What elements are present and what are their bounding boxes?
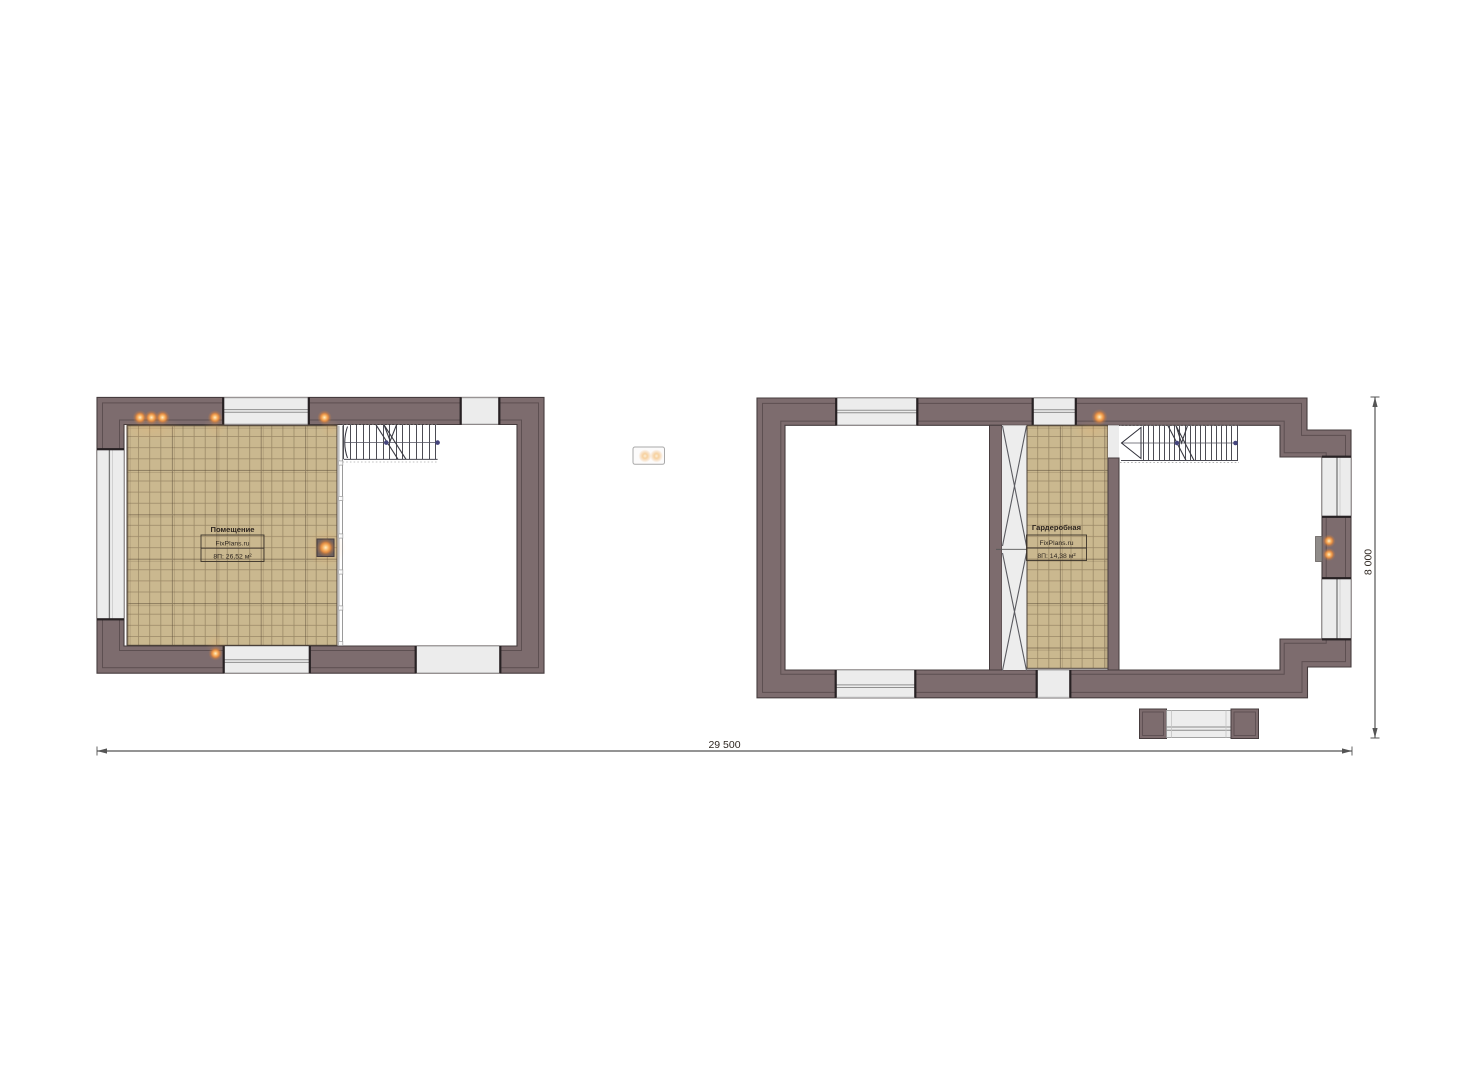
svg-text:8 000: 8 000 <box>1363 549 1375 575</box>
svg-text:FixPlans.ru: FixPlans.ru <box>1040 540 1074 547</box>
svg-text:8П: 14,38 м²: 8П: 14,38 м² <box>1037 553 1076 560</box>
svg-text:29 500: 29 500 <box>708 739 740 751</box>
svg-text:Помещение: Помещение <box>211 525 255 534</box>
svg-text:FixPlans.ru: FixPlans.ru <box>216 540 250 547</box>
svg-text:8П: 26,52 м²: 8П: 26,52 м² <box>213 553 252 560</box>
svg-text:Гардеробная: Гардеробная <box>1032 523 1081 532</box>
